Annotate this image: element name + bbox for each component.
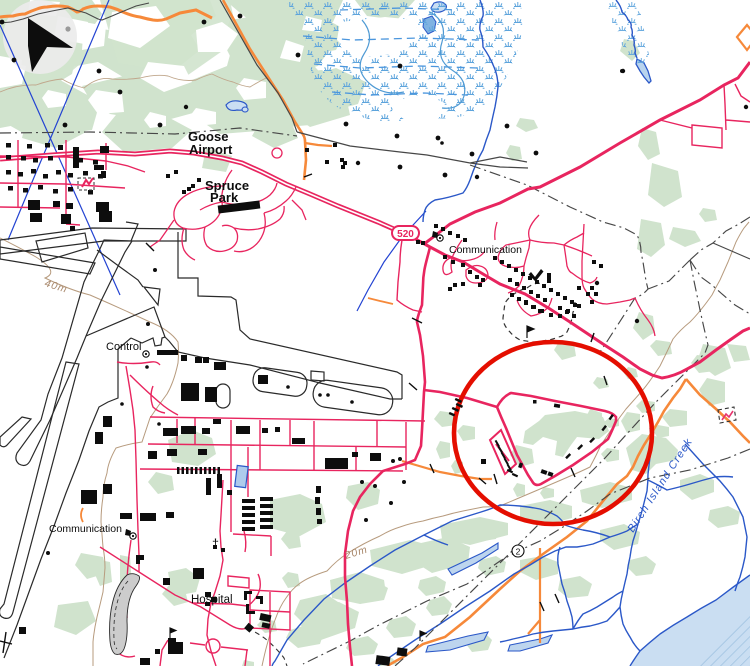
- svg-text:Communication: Communication: [49, 523, 122, 535]
- svg-text:520: 520: [397, 229, 414, 240]
- svg-text:†: †: [212, 537, 219, 551]
- svg-text:2: 2: [516, 547, 521, 557]
- svg-text:Airport: Airport: [189, 142, 233, 157]
- svg-text:Hospital: Hospital: [191, 594, 233, 606]
- svg-text:Park: Park: [210, 190, 239, 205]
- svg-text:Control: Control: [106, 341, 141, 353]
- svg-text:Communication: Communication: [449, 244, 522, 256]
